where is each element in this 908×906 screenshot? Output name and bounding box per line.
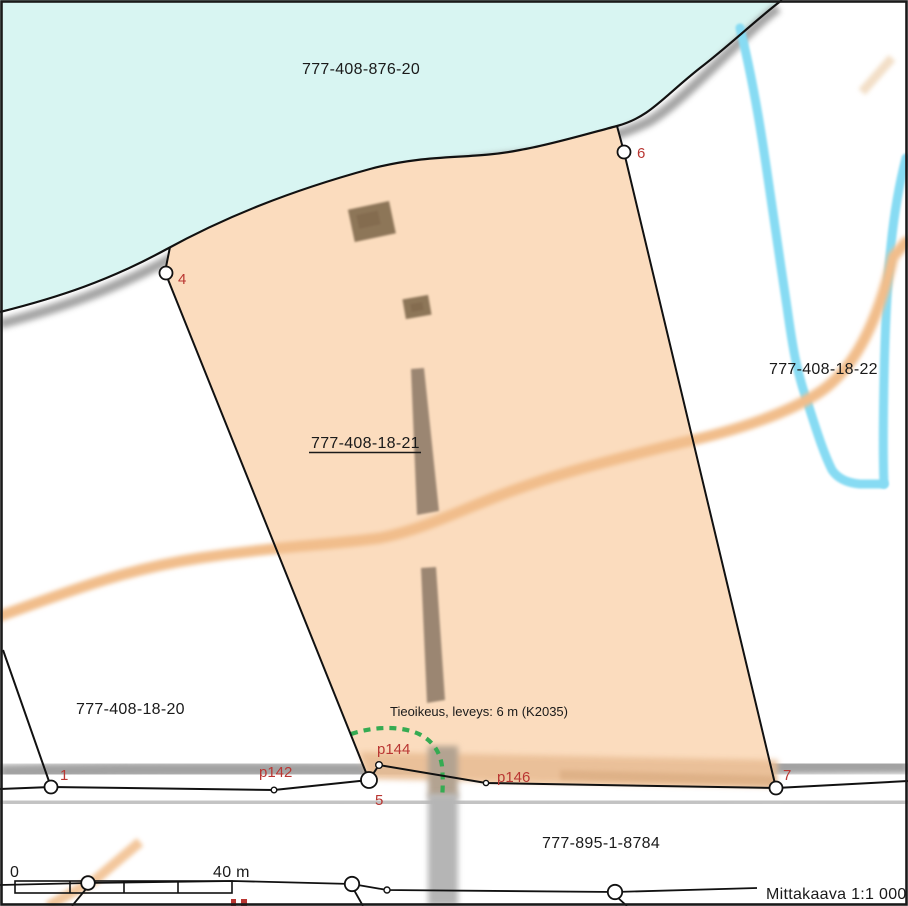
point-label-5: 5 — [375, 792, 383, 809]
scale-zero-label: 0 — [10, 864, 19, 881]
point-label-p142: p142 — [259, 764, 292, 781]
minor-vertex-p144 — [376, 762, 383, 769]
boundary-point-4-marker — [160, 267, 173, 280]
parcel-label-west: 777-408-18-20 — [76, 701, 185, 718]
easement-note-label: Tieoikeus, leveys: 6 m (K2035) — [390, 704, 568, 719]
point-label-1: 1 — [60, 767, 68, 784]
boundary-point-6-marker — [618, 146, 631, 159]
road-vertex-marker-3 — [608, 885, 622, 899]
road-vertex-marker-2 — [345, 877, 359, 891]
boundary-point-7-marker — [770, 782, 783, 795]
parcel-label-water: 777-408-876-20 — [302, 61, 420, 78]
point-label-4: 4 — [178, 271, 186, 288]
scale-max-label: 40 m — [213, 864, 250, 881]
parcel-label-main: 777-408-18-21 — [311, 435, 420, 452]
cadastral-map: 777-408-876-20 777-408-18-21 777-408-18-… — [0, 0, 908, 906]
minor-vertex-p146 — [483, 780, 488, 785]
point-label-p146: p146 — [497, 769, 530, 786]
map-canvas[interactable]: 777-408-876-20 777-408-18-21 777-408-18-… — [0, 0, 908, 906]
parcel-label-road: 777-895-1-8784 — [542, 835, 660, 852]
road-vertex-marker-1 — [81, 876, 95, 890]
point-label-6: 6 — [637, 145, 645, 162]
boundary-point-5-marker — [361, 772, 377, 788]
road-vertical-lower — [428, 794, 458, 906]
minor-vertex-p142 — [271, 787, 277, 793]
parcel-label-east: 777-408-18-22 — [769, 361, 878, 378]
scale-caption: Mittakaava 1:1 000 — [766, 886, 907, 903]
boundary-point-1-marker — [45, 781, 58, 794]
minor-vertex-road — [384, 887, 390, 893]
point-label-7: 7 — [783, 767, 791, 784]
point-label-p144: p144 — [377, 741, 410, 758]
